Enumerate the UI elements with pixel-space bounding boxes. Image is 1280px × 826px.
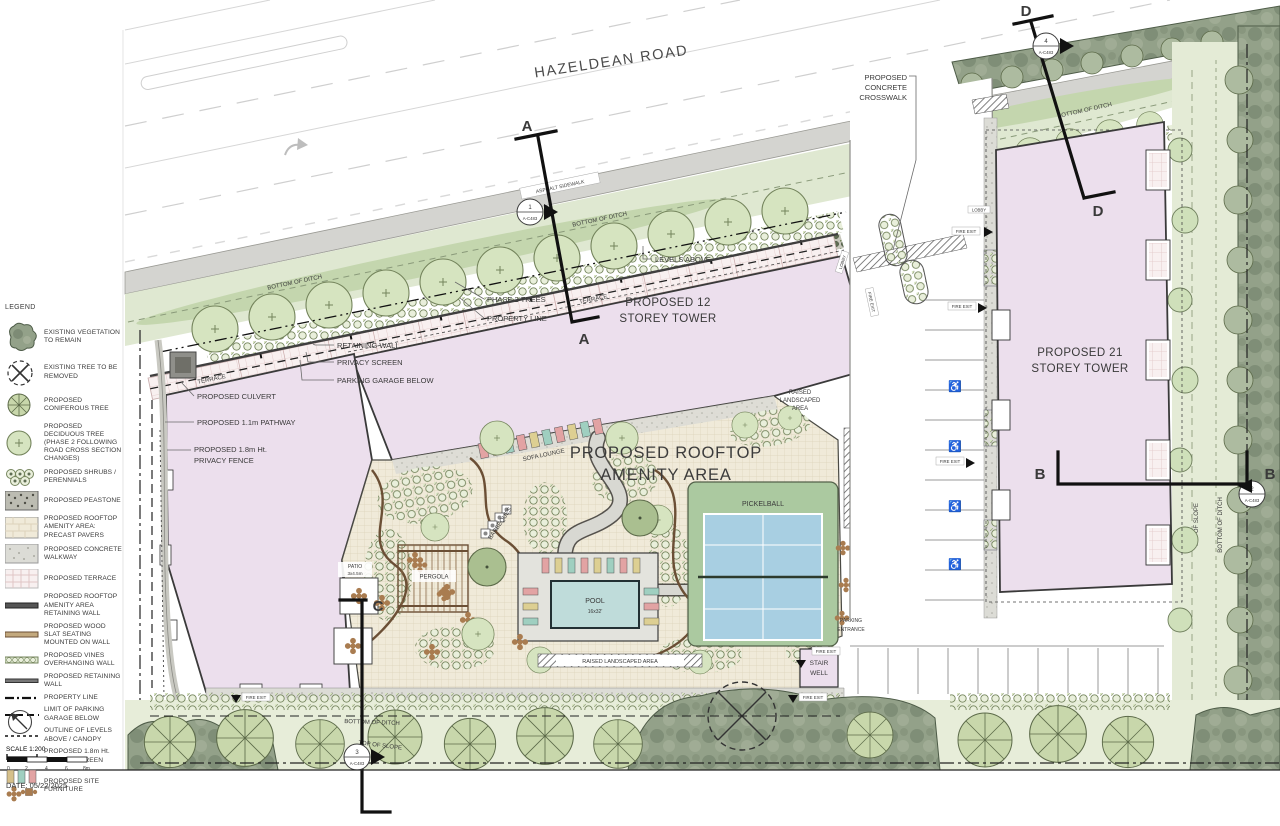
svg-text:6: 6 xyxy=(65,766,68,772)
svg-text:PRIVACY SCREEN: PRIVACY SCREEN xyxy=(337,358,403,367)
svg-text:C: C xyxy=(373,598,384,615)
turn-arrow-icon xyxy=(285,138,308,155)
svg-text:PRIVACY FENCE: PRIVACY FENCE xyxy=(194,456,254,465)
legend-item: PROPOSED ROOFTOP AMENITY AREA: PRECAST P… xyxy=(5,515,123,540)
svg-text:LOBBY: LOBBY xyxy=(972,208,986,213)
legend-item: PROPOSED DECIDUOUS TREE (PHASE 2 FOLLOWI… xyxy=(5,423,123,464)
patio-label: PATIO xyxy=(348,564,362,570)
svg-text:PROPOSED: PROPOSED xyxy=(864,73,907,82)
svg-text:LANDSCAPED: LANDSCAPED xyxy=(780,398,821,404)
svg-text:FIRE EXIT: FIRE EXIT xyxy=(956,229,977,234)
svg-text:FIRE EXIT: FIRE EXIT xyxy=(803,695,824,700)
svg-text:FIRE EXIT: FIRE EXIT xyxy=(952,304,973,309)
retaining-wall-swatch xyxy=(5,678,39,684)
svg-text:PHASE 2 TREES: PHASE 2 TREES xyxy=(487,295,546,304)
peastone-swatch xyxy=(5,491,39,511)
terrace-swatch xyxy=(5,569,39,589)
tower-21-label: STOREY TOWER xyxy=(1031,363,1128,375)
date-label: DATE: 05/22/2025 xyxy=(6,781,67,790)
pool-label: POOL xyxy=(585,598,605,605)
concrete-walkway-swatch xyxy=(5,544,39,564)
scale-block: SCALE 1:200 0 2 4 6 8m xyxy=(6,708,116,777)
svg-text:STAIR: STAIR xyxy=(810,660,829,667)
parking-entrance-label: ENTRANCE xyxy=(837,627,865,633)
amenity-title: PROPOSED ROOFTOP xyxy=(570,444,762,462)
svg-text:RAISED LANDSCAPED AREA: RAISED LANDSCAPED AREA xyxy=(582,659,658,665)
svg-text:FIRE EXIT: FIRE EXIT xyxy=(940,459,961,464)
svg-text:PROPERTY LINE: PROPERTY LINE xyxy=(487,314,547,323)
property-line-swatch xyxy=(5,696,39,700)
svg-text:♿: ♿ xyxy=(948,500,962,513)
precast-pavers-swatch xyxy=(5,517,39,539)
svg-text:PROPOSED 1.1m PATHWAY: PROPOSED 1.1m PATHWAY xyxy=(197,418,296,427)
svg-text:8m: 8m xyxy=(83,766,90,772)
legend-header: LEGEND xyxy=(5,304,123,311)
legend-item: PROPOSED WOOD SLAT SEATING MOUNTED ON WA… xyxy=(5,623,123,648)
legend-item: PROPOSED TERRACE xyxy=(5,569,123,589)
svg-text:WELL: WELL xyxy=(810,670,828,677)
svg-text:RAISED: RAISED xyxy=(789,390,812,396)
parking-entrance-label: PARKING xyxy=(840,618,862,624)
coniferous-tree-icon xyxy=(5,392,39,418)
svg-text:♿: ♿ xyxy=(948,558,962,571)
raised-landscaped-bottom: RAISED LANDSCAPED AREA xyxy=(538,654,702,667)
parking-south xyxy=(850,646,1164,694)
site-plan-sheet: HAZELDEAN ROAD ASPHALT SIDEWALK BOTTOM O… xyxy=(0,0,1280,826)
svg-text:LEVELS ABOVE: LEVELS ABOVE xyxy=(655,255,711,264)
svg-text:2: 2 xyxy=(25,766,28,772)
tower-12-label: PROPOSED 12 xyxy=(625,297,711,309)
pool-size-label: 16x32' xyxy=(588,609,603,615)
svg-text:CROSSWALK: CROSSWALK xyxy=(859,93,907,102)
bottom-of-ditch-label: BOTTOM OF DITCH xyxy=(1218,497,1224,553)
svg-text:RETAINING WALL: RETAINING WALL xyxy=(337,341,400,350)
road-median-outline xyxy=(140,35,348,91)
scale-bar: 0 2 4 6 8m xyxy=(6,756,106,772)
north-arrow-icon xyxy=(6,708,34,736)
legend-item: EXISTING VEGETATION TO REMAIN xyxy=(5,321,123,353)
pool-area: POOL 16x32' xyxy=(518,553,659,641)
svg-text:A: A xyxy=(522,118,533,135)
svg-text:CONCRETE: CONCRETE xyxy=(865,83,907,92)
shrubs-icon xyxy=(5,468,39,486)
tower-12-label: STOREY TOWER xyxy=(619,313,716,325)
legend-item: PROPERTY LINE xyxy=(5,694,123,702)
legend-item: PROPOSED CONIFEROUS TREE xyxy=(5,392,123,418)
svg-text:A: A xyxy=(579,331,590,348)
amenity-title: AMENITY AREA xyxy=(600,466,731,484)
svg-text:A-C483: A-C483 xyxy=(350,761,365,766)
legend-item: PROPOSED VINES OVERHANGING WALL xyxy=(5,652,123,668)
legend-item: PROPOSED PEASTONE xyxy=(5,491,123,511)
svg-text:A-C483: A-C483 xyxy=(1039,50,1054,55)
svg-text:PROPOSED 1.8m Ht.: PROPOSED 1.8m Ht. xyxy=(194,445,267,454)
legend-item: PROPOSED SHRUBS / PERENNIALS xyxy=(5,468,123,486)
svg-text:A-C483: A-C483 xyxy=(1245,498,1260,503)
patio-size-label: 3x4.5m xyxy=(347,571,362,576)
svg-text:♿: ♿ xyxy=(948,380,962,393)
scale-label: SCALE 1:200 xyxy=(6,746,116,753)
svg-text:0: 0 xyxy=(7,766,10,772)
svg-text:4: 4 xyxy=(45,766,48,772)
svg-text:PARKING GARAGE BELOW: PARKING GARAGE BELOW xyxy=(337,376,434,385)
pickleball-label: PICKELBALL xyxy=(742,501,784,508)
svg-text:D: D xyxy=(1093,203,1104,220)
tower-21-label: PROPOSED 21 xyxy=(1037,347,1123,359)
svg-text:AREA: AREA xyxy=(792,406,808,412)
svg-text:FIRE EXIT: FIRE EXIT xyxy=(246,695,267,700)
south-landscape: BOTTOM OF DITCH TOP OF SLOPE xyxy=(125,682,1280,770)
svg-text:A-C483: A-C483 xyxy=(523,216,538,221)
deciduous-tree-icon xyxy=(5,429,39,457)
svg-text:FIRE EXIT: FIRE EXIT xyxy=(816,649,837,654)
legend-item: PROPOSED CONCRETE WALKWAY xyxy=(5,544,123,564)
vines-overhang-swatch xyxy=(5,655,39,665)
legend-item: EXISTING TREE TO BE REMOVED xyxy=(5,358,123,388)
legend-item: PROPOSED RETAINING WALL xyxy=(5,673,123,689)
svg-text:D: D xyxy=(1021,3,1032,20)
wood-slat-seating-swatch xyxy=(5,631,39,639)
site-plan-drawing: HAZELDEAN ROAD ASPHALT SIDEWALK BOTTOM O… xyxy=(0,0,1280,826)
pergola-label: PERGOLA xyxy=(419,575,448,581)
svg-text:B: B xyxy=(1265,466,1276,483)
legend-item: PROPOSED ROOFTOP AMENITY AREA RETAINING … xyxy=(5,593,123,618)
pickleball-court: PICKELBALL xyxy=(688,482,838,646)
tree-removed-icon xyxy=(5,358,39,388)
east-slope-band: TOP OF SLOPE BOTTOM OF DITCH xyxy=(1168,26,1280,770)
svg-text:♿: ♿ xyxy=(948,440,962,453)
svg-text:PROPOSED CULVERT: PROPOSED CULVERT xyxy=(197,392,276,401)
svg-text:B: B xyxy=(1035,466,1046,483)
road-name-label: HAZELDEAN ROAD xyxy=(533,43,689,82)
amenity-retaining-wall-swatch xyxy=(5,602,39,610)
existing-vegetation-swatch xyxy=(5,321,39,353)
